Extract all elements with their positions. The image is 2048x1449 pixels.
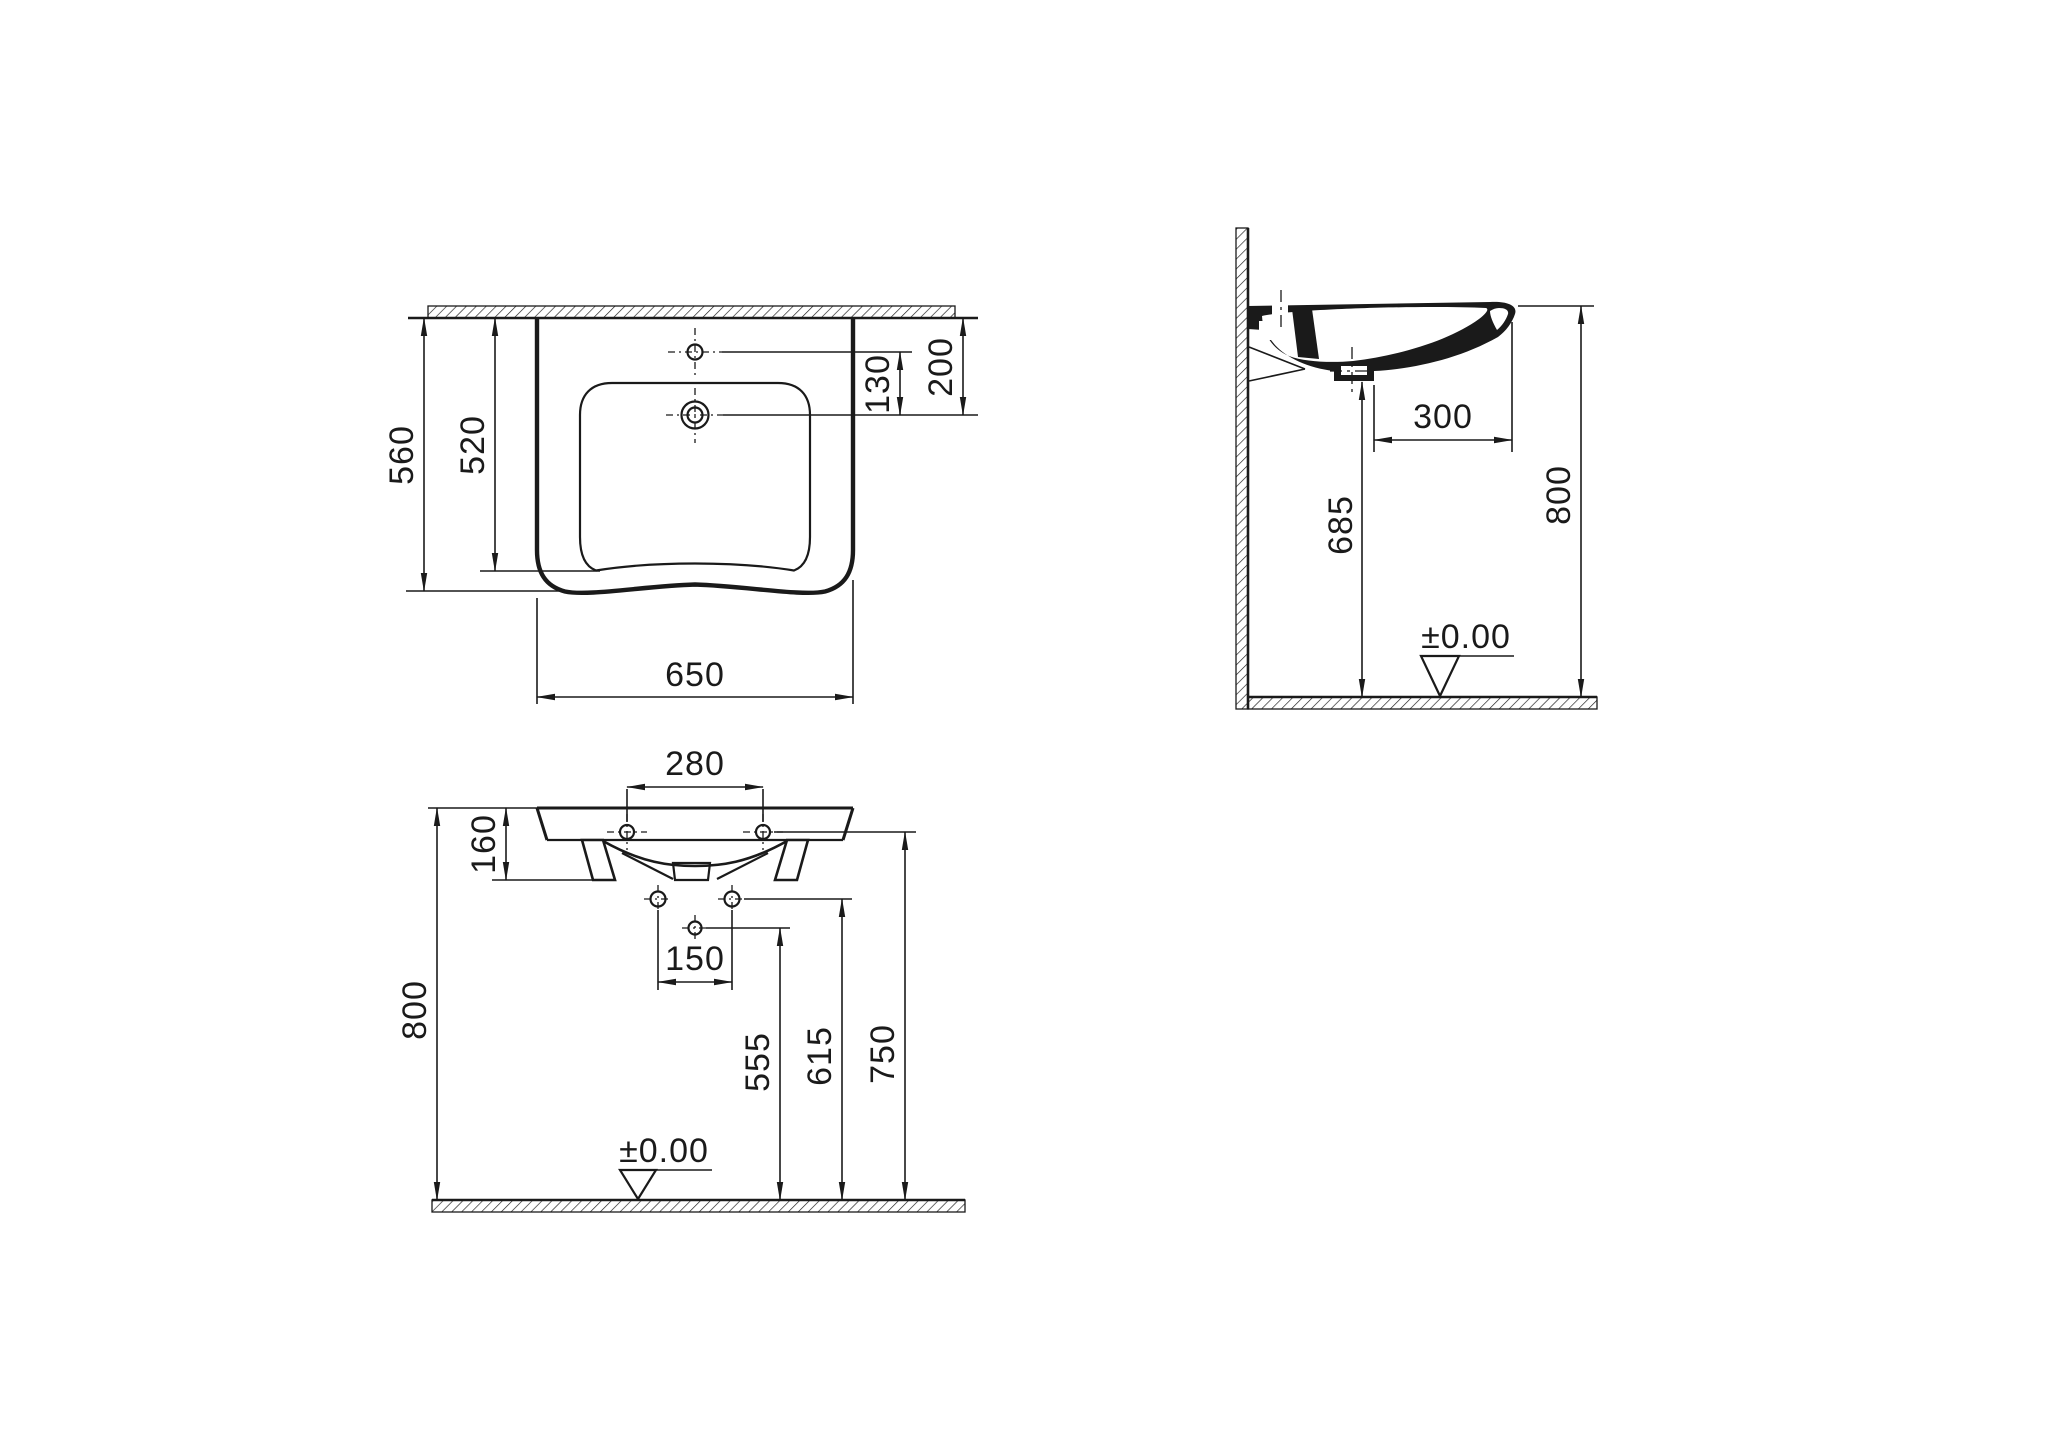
dim-200: 200 [922, 318, 963, 415]
sink-rim-left [537, 808, 547, 840]
technical-drawing-sheet: 560 520 130 200 650 [0, 0, 2048, 1449]
dim-label-300: 300 [1413, 398, 1473, 436]
bowl-underside-edge [717, 853, 768, 879]
wall-hatch [428, 306, 955, 318]
support-edge-line [1249, 369, 1305, 381]
bracket-slot [1266, 330, 1277, 340]
datum-triangle-icon [1421, 656, 1459, 696]
sink-rim-right [843, 808, 853, 840]
bracket-slot [1259, 321, 1267, 338]
dim-label-130: 130 [859, 354, 897, 414]
dim-label-800: 800 [1540, 465, 1578, 525]
front-view: 280 160 800 150 555 615 [396, 745, 965, 1212]
dim-label-200: 200 [922, 337, 960, 397]
dim-label-560: 560 [383, 425, 421, 485]
washbasin-dimension-drawing: 560 520 130 200 650 [0, 0, 2048, 1449]
tap-holes [607, 814, 783, 850]
support-edge-line [1249, 347, 1305, 369]
side-view: 300 685 800 ±0.00 [1236, 228, 1597, 709]
dim-label-150: 150 [665, 940, 725, 978]
dim-160: 160 [465, 808, 600, 880]
dim-label-800: 800 [396, 980, 434, 1040]
wall-hatch [1236, 228, 1248, 709]
dim-label-685: 685 [1322, 495, 1360, 555]
floor-hatch [432, 1200, 965, 1212]
bowl-underside-edge [622, 853, 673, 879]
dim-label-520: 520 [454, 415, 492, 475]
dim-750: 750 [774, 832, 916, 1200]
dim-685: 685 [1322, 382, 1362, 697]
datum-label: ±0.00 [1421, 618, 1511, 656]
dim-label-280: 280 [665, 745, 725, 783]
dim-650: 650 [537, 580, 853, 704]
dim-130: 130 [859, 352, 900, 415]
datum-triangle-icon [620, 1170, 656, 1199]
dim-label-750: 750 [864, 1024, 902, 1084]
dim-520: 520 [454, 318, 600, 571]
floor-hatch [1248, 697, 1597, 709]
dim-label-650: 650 [665, 656, 725, 694]
datum-front: ±0.00 [619, 1132, 712, 1199]
wall-fixing-holes [644, 885, 746, 941]
dim-label-615: 615 [801, 1026, 839, 1086]
datum-label: ±0.00 [619, 1132, 709, 1170]
dim-label-555: 555 [739, 1032, 777, 1092]
dim-280: 280 [627, 745, 763, 822]
basin-section-silhouette [1248, 302, 1515, 381]
dim-800-side: 800 [1518, 306, 1594, 697]
dim-label-160: 160 [465, 814, 503, 874]
datum-side: ±0.00 [1421, 618, 1514, 696]
tap-hole-section [1272, 302, 1288, 315]
plan-view: 560 520 130 200 650 [383, 306, 978, 704]
